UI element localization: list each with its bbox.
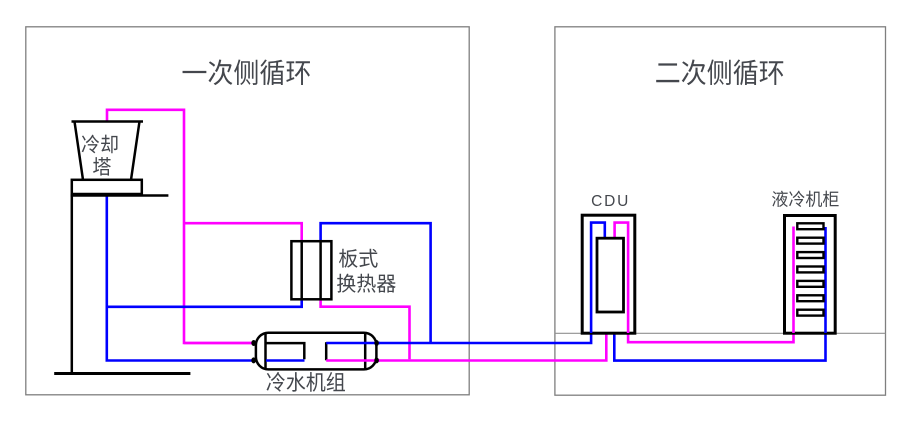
svg-text:CDU: CDU: [591, 193, 630, 210]
